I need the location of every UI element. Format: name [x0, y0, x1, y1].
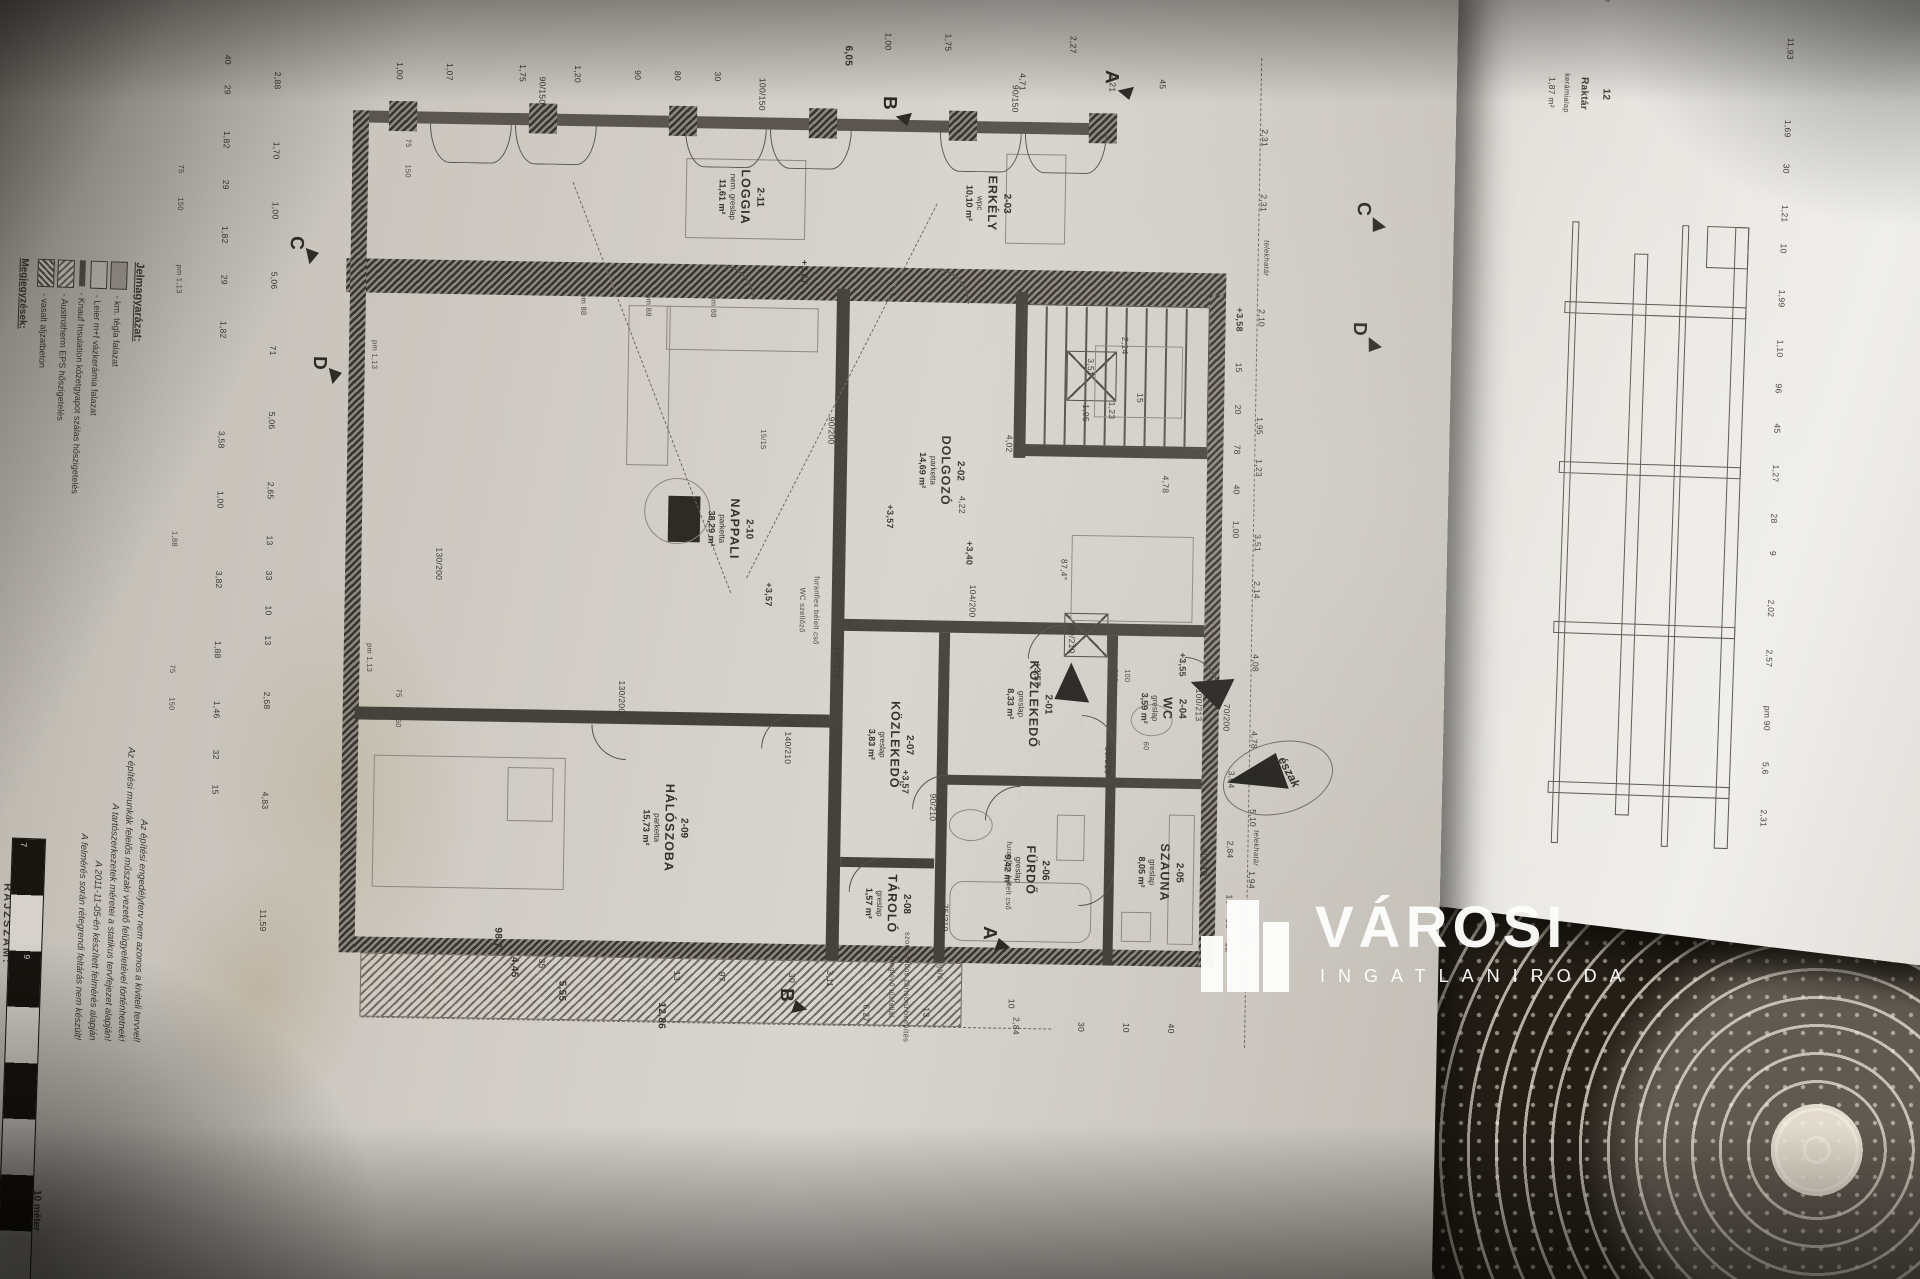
dimension-text: 2,31: [1260, 129, 1270, 147]
dimension-text: 1,00: [270, 202, 280, 220]
dimension-text: 104/200: [967, 585, 978, 618]
dimension-text: 29: [219, 275, 229, 285]
side-sheet-label: Raktár: [1578, 77, 1590, 110]
dimension-text: 1,46: [212, 701, 222, 719]
dimension-text: 4,02: [1004, 435, 1014, 453]
dimension-text: 75: [177, 164, 186, 173]
dimension-text: +3,58: [1234, 308, 1244, 332]
dimension-text: 6,27: [861, 1004, 871, 1022]
dimension-text: 4,45: [509, 957, 520, 978]
dimension-text: 13: [921, 1007, 931, 1017]
legend-swatch-icon: [90, 261, 108, 290]
dimension-text: 5,55: [556, 981, 567, 1002]
legend-item-label: - km. tégla falazat: [111, 295, 123, 366]
scale-label: 10 méter: [31, 1190, 43, 1231]
dimension-text: 71: [268, 346, 278, 356]
dimension-text: 40: [223, 55, 233, 65]
room-floor-finish: nem. greslap: [727, 169, 738, 224]
dimension-text: 1,94: [1247, 871, 1257, 889]
window-arc-icon: [429, 122, 512, 164]
side-sheet-dimension: 10: [1778, 243, 1788, 253]
side-sheet-dimension: pm 90: [1762, 706, 1773, 731]
dimension-text: +3,57: [764, 582, 774, 606]
section-marker-C: C: [285, 236, 307, 250]
dimension-text: 2,84: [1011, 1017, 1021, 1035]
dimension-text: 15: [210, 785, 220, 795]
room-label-2-09: 2-09HÁLÓSZOBAparketta15,73 m²: [639, 783, 690, 872]
dimension-text: 1,82: [222, 131, 232, 149]
legend-swatch-icon: [37, 259, 55, 288]
dimension-text: meglévő tűzfallal: [887, 956, 897, 1017]
dimension-text: 90/210: [928, 793, 938, 821]
buildings-icon: [1193, 892, 1301, 1000]
dimension-text: 70/200: [1221, 704, 1231, 732]
room-area: 1,57 m²: [862, 874, 874, 933]
room-area: 11,61 m²: [716, 169, 728, 225]
side-sheet-wall: [1661, 225, 1690, 847]
dimension-text: 13: [672, 971, 682, 981]
dimension-text: 35: [537, 959, 547, 969]
room-area: 10,10 m²: [962, 175, 974, 231]
room-label-2-11: 2-11LOGGIAnem. greslap11,61 m²: [716, 169, 766, 225]
section-marker-C: C: [1352, 202, 1374, 216]
side-sheet-dimension: 1,21: [1780, 205, 1791, 223]
dimension-text: pm 1,13: [365, 643, 375, 672]
room-name: NAPPALI: [726, 498, 743, 559]
dimension-text: 3,51: [1253, 534, 1263, 552]
room-floor-finish: greslap: [1149, 693, 1160, 724]
dimension-text: 97: [717, 972, 727, 982]
section-marker-B: B: [775, 988, 797, 1002]
furniture: [1070, 535, 1193, 623]
furniture: [1056, 815, 1085, 861]
logo-subtitle: INGATLANIRODA: [1320, 966, 1635, 987]
logo-title: VÁROSI: [1315, 894, 1567, 961]
dimension-text: pm 1,13: [370, 340, 380, 369]
dimension-text: +3,67: [799, 260, 809, 284]
dimension-text: 4,71: [1018, 73, 1028, 91]
room-label-2-10: 2-10NAPPALIparketta38,29 m²: [705, 498, 755, 560]
wall: [840, 857, 934, 869]
room-number: 2-08: [899, 874, 913, 933]
dimension-text: pm 88: [579, 293, 588, 316]
dimension-text: 2,68: [262, 692, 272, 710]
legend-swatch-icon: [110, 261, 128, 290]
dimension-text: 10: [264, 605, 274, 615]
dimension-text: 1,23: [1254, 459, 1264, 477]
dimension-text: 4,08: [1251, 654, 1261, 672]
wall: [941, 775, 1201, 790]
dimension-text: 1,00: [215, 491, 225, 509]
dimension-text: 30: [1076, 1022, 1086, 1032]
dimension-text: 15/15: [835, 561, 844, 581]
room-area: 3,59 m²: [1138, 693, 1150, 724]
dimension-text: 150: [176, 197, 185, 211]
dimension-text: pm 88: [644, 294, 653, 317]
room-number: 2-03: [999, 176, 1012, 232]
room-name: SZAUNA: [1156, 843, 1173, 901]
section-marker-A: A: [1100, 70, 1122, 84]
dimension-text: 2,14: [1120, 337, 1130, 355]
furniture: [626, 305, 671, 466]
dimension-text: 80: [673, 71, 683, 81]
side-sheet-dimension: 5,6: [1760, 762, 1770, 775]
dimension-text: 15: [1135, 393, 1145, 403]
side-sheet-dimension: 1,69: [1783, 120, 1794, 138]
dimension-text: 100: [1123, 669, 1132, 683]
legend-item-label: - Austrotherm EPS hőszigetelés: [56, 294, 70, 421]
side-sheet-label: kerámialap: [1562, 73, 1572, 113]
dimension-text: 90: [633, 70, 643, 80]
side-sheet-label: 12: [1600, 88, 1611, 100]
scale-tick: 8: [19, 897, 29, 902]
dimension-text: 1,23: [1107, 402, 1117, 420]
room-number: 2-10: [742, 499, 756, 560]
floor-plan-canvas: 2-01KÖZLEKEDŐgreslap8,33 m²2-02DOLGOZÓpa…: [311, 2, 1279, 1048]
legend: Jelmagyarázat: - km. tégla falazat- Leie…: [0, 258, 146, 603]
wall: [389, 101, 418, 131]
side-sheet-wall: [1559, 461, 1741, 479]
side-sheet-wall: [1553, 621, 1735, 639]
room-name: LOGGIA: [737, 169, 754, 225]
dimension-text: pm 1,13: [175, 264, 185, 293]
dimension-text: 4,83: [260, 792, 270, 810]
dimension-text: 15/15: [759, 429, 768, 449]
dimension-text: 100/213: [1194, 689, 1205, 722]
room-label-2-01: 2-01KÖZLEKEDŐgreslap8,33 m²: [1003, 660, 1054, 748]
dimension-text: 33: [264, 570, 274, 580]
dimension-text: pm 88: [709, 295, 718, 318]
side-sheet-wall: [1615, 253, 1649, 815]
dimension-text: 11,59: [258, 909, 268, 931]
room-label-2-05: 2-05SZAUNAgreslap8,05 m²: [1135, 843, 1185, 902]
room-number: 2-11: [752, 170, 765, 226]
dimension-text: 1,00: [1231, 521, 1241, 539]
side-sheet-dimension: 1,27: [1770, 464, 1781, 482]
room-name: WC: [1159, 693, 1175, 724]
dimension-text: 20: [1233, 405, 1243, 415]
room-number: 2-09: [676, 784, 690, 872]
dimension-text: 140/210: [832, 646, 843, 679]
side-sheet-dimension: 1,10: [1775, 340, 1786, 358]
dimension-text: 3,51: [1086, 358, 1096, 376]
dimension-text: 90/200: [826, 417, 836, 445]
dimension-text: 13: [265, 535, 275, 545]
dimension-text: furanflex bélelt cső: [811, 576, 821, 645]
dimension-text: 29: [221, 180, 231, 190]
dimension-text: furanflex bélelt cső: [1004, 841, 1014, 910]
dimension-text: 1,82: [220, 226, 230, 244]
dimension-text: 130/200: [434, 547, 445, 580]
room-area: 3,83 m²: [865, 701, 878, 789]
agency-watermark: VÁROSI INGATLANIRODA: [1193, 888, 1613, 1028]
side-sheet-dimension: 45: [1772, 423, 1782, 433]
furniture: [1121, 912, 1152, 943]
dimension-text: WC szellőző: [798, 588, 808, 633]
room-number: 2-04: [1175, 693, 1188, 724]
dimension-text: 98,7°: [492, 927, 503, 952]
room-name: FÜRDŐ: [1022, 845, 1038, 895]
section-marker-D: D: [308, 356, 330, 370]
building-bar: [1227, 900, 1259, 992]
dimension-text: 40: [1166, 1024, 1176, 1034]
dimension-text: 100/150: [757, 78, 768, 111]
scale-tick: 7: [19, 842, 29, 847]
dimension-text: 2,88: [273, 72, 283, 90]
door-swing-icon: [591, 724, 627, 760]
dimension-text: 30: [787, 973, 797, 983]
section-marker-D: D: [1348, 322, 1370, 336]
legend-swatch-icon: [57, 259, 75, 288]
room-area: 15,73 m²: [639, 783, 652, 871]
dimension-text: +3,57: [900, 770, 910, 794]
dimension-text: 90/210: [1103, 747, 1113, 775]
dimension-text: 150: [167, 697, 176, 711]
photo-of-floorplan: 12Raktárkerámialap1,87 m²12Raktárkerámia…: [0, 0, 1920, 1279]
dimension-text: 13: [263, 635, 273, 645]
dimension-text: 78: [1232, 445, 1242, 455]
dimension-text: hágcsó padlásfeljáró: [936, 905, 946, 980]
side-sheet-wall: [1706, 226, 1749, 269]
dimension-text: 45: [1158, 79, 1168, 89]
room-name: HÁLÓSZOBA: [660, 784, 677, 872]
legend-item-label: - Leier m+f vázkerámia falazat: [89, 295, 103, 416]
window-arc-icon: [939, 130, 1022, 172]
dimension-text: 2,84: [1225, 841, 1235, 859]
section-marker-B: B: [878, 96, 900, 110]
dimension-text: 75: [404, 139, 413, 148]
dimension-text: 1,95: [1255, 417, 1265, 435]
dimension-text: 40: [1232, 485, 1242, 495]
wall: [346, 258, 1226, 307]
dimension-text: 75: [394, 689, 403, 698]
side-sheet-dimension: 11,93: [1785, 38, 1796, 60]
dimension-text: 3,58: [216, 431, 226, 449]
dimension-text: 2,27: [1068, 36, 1078, 54]
window-arc-icon: [514, 123, 597, 165]
dimension-text: 10: [1007, 999, 1017, 1009]
section-arrow-icon: [1054, 661, 1093, 702]
side-sheet-dimension: 2,02: [1766, 599, 1777, 617]
dimension-text: 1,88: [213, 641, 223, 659]
dimension-text: 87,4°: [1059, 559, 1069, 581]
dimension-text: 60: [1142, 742, 1151, 751]
dimension-text: 213: [1111, 669, 1120, 683]
dimension-text: 130/200: [617, 681, 628, 714]
building-bar: [1263, 922, 1289, 992]
dimension-text: 1,82: [218, 321, 228, 339]
side-sheet-dimension: 30: [1781, 163, 1791, 173]
dimension-text: 1,20: [573, 65, 583, 83]
side-sheet-wall: [1564, 301, 1746, 319]
dimension-text: 2,10: [1257, 309, 1267, 327]
furniture: [507, 767, 554, 822]
dimension-text: 4,78: [1161, 476, 1171, 494]
room-number: 2-06: [1038, 846, 1051, 896]
dimension-text: +3,57: [1032, 662, 1042, 686]
dimension-text: 6,05: [843, 45, 854, 66]
room-label-2-04: 2-04WCgreslap3,59 m²: [1138, 693, 1188, 725]
section-marker-A: A: [978, 926, 1000, 940]
dimension-text: 75: [168, 664, 177, 673]
room-name: ERKÉLY: [984, 175, 1001, 231]
dimension-text: 2,65: [266, 482, 276, 500]
notes-heading: Megjegyzések:: [7, 258, 30, 598]
dimension-text: telekhatár: [1252, 830, 1262, 866]
legend-swatch-icon: [79, 260, 86, 286]
dimension-text: 30: [713, 71, 723, 81]
dimension-text: 10: [1121, 1023, 1131, 1033]
dimension-text: 1,75: [943, 34, 953, 52]
furniture: [644, 477, 711, 544]
dimension-text: +3,55: [1177, 653, 1187, 677]
building-bar: [1201, 936, 1223, 992]
dimension-text: 90/150: [537, 77, 547, 105]
dimension-text: 1,70: [271, 142, 281, 160]
dimension-text: szomszédos zártsorú beépítés: [901, 932, 912, 1042]
dimension-text: 32: [211, 750, 221, 760]
dimension-text: 1,07: [445, 63, 455, 81]
dimension-text: 12,86: [656, 1002, 667, 1029]
side-sheet-dimension: 96: [1774, 383, 1784, 393]
room-name: TÁROLÓ: [883, 874, 900, 933]
left-dimension-chains: 2,881,701,005,06715,062,65133310132,684,…: [131, 18, 339, 1041]
window-arc-icon: [1024, 132, 1107, 174]
side-sheet-dimension: 2,57: [1764, 649, 1775, 667]
dimension-text: 29: [223, 85, 233, 95]
side-sheet-dimension: 2,31: [1758, 809, 1769, 827]
room-label-2-08: 2-08TÁROLÓgreslap1,57 m²: [862, 874, 912, 934]
dimension-text: 2,31: [1259, 194, 1269, 212]
side-sheet-label: kerámialap: [1604, 0, 1614, 2]
side-sheet-wall: [1714, 227, 1750, 849]
legend-items: - km. tégla falazat- Leier m+f vázkerámi…: [26, 259, 128, 602]
side-sheet-dimension: 9: [1768, 551, 1778, 556]
dimension-text: 3,11: [825, 970, 835, 987]
dimension-text: 90/210: [1199, 848, 1209, 876]
dimension-text: 1,88: [170, 531, 179, 547]
dimension-text: 2,14: [1252, 581, 1262, 599]
side-sheet-dimension: 1,99: [1777, 290, 1788, 308]
room-name: DOLGOZÓ: [937, 435, 954, 505]
side-sheet-dimension: 28: [1769, 513, 1779, 523]
room-area: 8,05 m²: [1135, 843, 1147, 901]
dimension-text: 150: [403, 164, 412, 178]
dimension-text: 90/210: [1067, 626, 1077, 654]
dimension-text: 5,06: [269, 272, 279, 290]
room-number: 2-05: [1172, 844, 1186, 902]
side-sheet-label: 1,87 m²: [1546, 77, 1557, 108]
wall: [1102, 635, 1118, 965]
window-arc-icon: [684, 126, 767, 168]
dimension-text: 3,82: [214, 571, 224, 589]
dimension-text: 150: [394, 714, 403, 728]
wall: [338, 110, 369, 952]
room-area: 8,33 m²: [1003, 660, 1016, 748]
dimension-text: telekhatár: [1262, 240, 1272, 276]
furniture: [666, 306, 819, 353]
dimension-text: 1,00: [395, 62, 405, 80]
scale-tick: 9: [22, 954, 32, 959]
dimension-text: +3,40: [964, 541, 974, 565]
room-label-2-03: 2-03ERKÉLYwpc10,10 m²: [962, 175, 1012, 231]
door-swing-icon: [985, 785, 1021, 821]
legend-item-label: - vasalt aljzatbeton: [38, 293, 51, 368]
room-area: 14,69 m²: [916, 435, 928, 505]
window-arc-icon: [769, 128, 852, 170]
side-sheet-wall: [1551, 221, 1580, 843]
side-sheet-wall: [1548, 781, 1730, 799]
dimension-text: 1,75: [518, 64, 528, 82]
dimension-text: 1,95: [1081, 404, 1091, 422]
dimension-text: +3,57: [885, 504, 895, 528]
dimension-text: 140/210: [783, 731, 794, 764]
dimension-text: 15: [1234, 363, 1244, 373]
dimension-text: 4,22: [957, 496, 967, 514]
dimension-text: 5,06: [267, 412, 277, 430]
room-area: 38,29 m²: [705, 498, 717, 559]
dimension-text: 1,00: [883, 33, 893, 51]
second-sheet-drawing: 12Raktárkerámialap1,87 m²12Raktárkerámia…: [1425, 0, 1890, 932]
